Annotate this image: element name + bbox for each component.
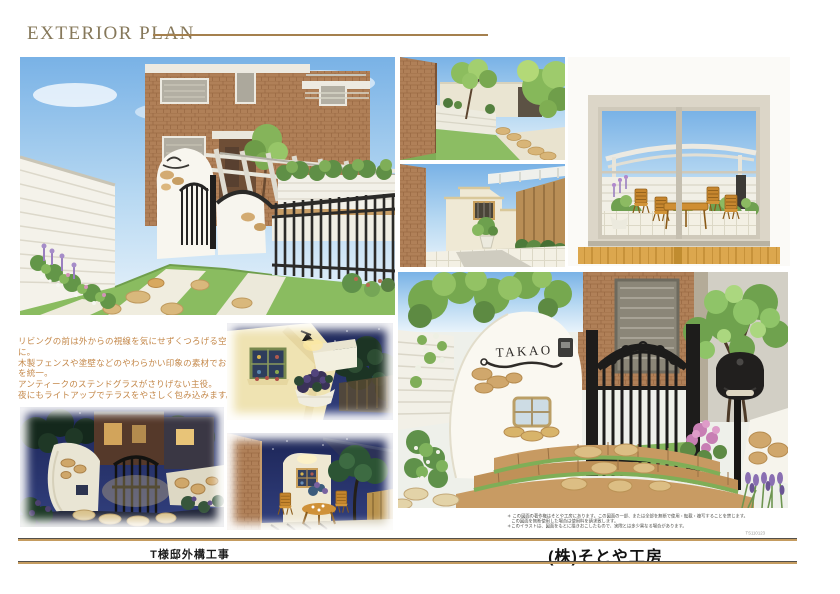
night-entrance-illustration — [20, 407, 224, 527]
takao-nameplate-text: TAKAO — [495, 342, 553, 360]
footer-rule-top — [18, 538, 797, 541]
terrace-window-illustration — [568, 57, 790, 266]
description-line: リビングの前は外からの視線を気にせずくつろげる空間に。 — [18, 336, 236, 358]
description-line: 木製フェンスや塗壁などのやわらかい印象の素材でお庭を統一。 — [18, 358, 236, 380]
side-garden-illustration — [400, 57, 565, 160]
description-line: 夜にもライトアップでテラスをやさしく包み込みます。 — [18, 390, 236, 401]
courtyard-illustration — [400, 164, 565, 267]
rendering-entrance-gate: TAKAO — [398, 272, 788, 508]
rendering-courtyard-wall — [400, 164, 565, 267]
footer-rule-bottom — [18, 561, 797, 564]
project-name: T様邸外構工事 — [95, 546, 285, 562]
title-rule — [153, 34, 488, 36]
copyright-notice: ＊ この図面の著作権はそとや工房にあります。この図面の一部、または全部を無断で使… — [507, 514, 840, 540]
rendering-terrace-window-view — [568, 57, 790, 266]
night-wall-illustration — [227, 323, 393, 420]
presentation-board: EXTERIOR PLAN — [0, 0, 840, 594]
rendering-night-terrace — [227, 433, 393, 530]
rendering-side-garden — [400, 57, 565, 160]
main-garden-illustration — [20, 57, 395, 315]
rendering-night-wall-lamp — [227, 323, 393, 420]
entrance-gate-illustration: TAKAO — [398, 272, 788, 508]
night-terrace-illustration — [227, 433, 393, 530]
description-line: アンティークのステンドグラスがさりげない主役。 — [18, 379, 236, 390]
description-text: リビングの前は外からの視線を気にせずくつろげる空間に。 木製フェンスや塗壁などの… — [18, 336, 236, 401]
copyright-line-3: ＊このイラストは、図面をもとに描きおこしたもので、実際とは多少異なる場合がありま… — [507, 524, 840, 529]
rendering-main-garden — [20, 57, 395, 315]
drawing-code: TS110123 — [507, 531, 840, 536]
rendering-night-entrance — [20, 407, 224, 527]
